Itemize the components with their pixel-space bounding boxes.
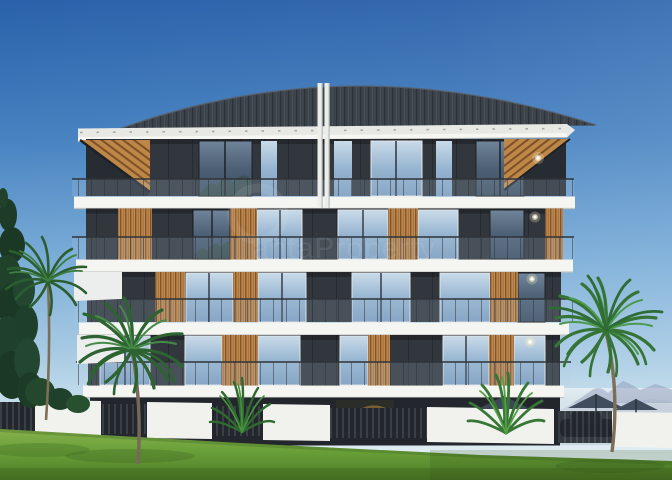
svg-text:antaProperty: antaProperty [252, 232, 436, 265]
